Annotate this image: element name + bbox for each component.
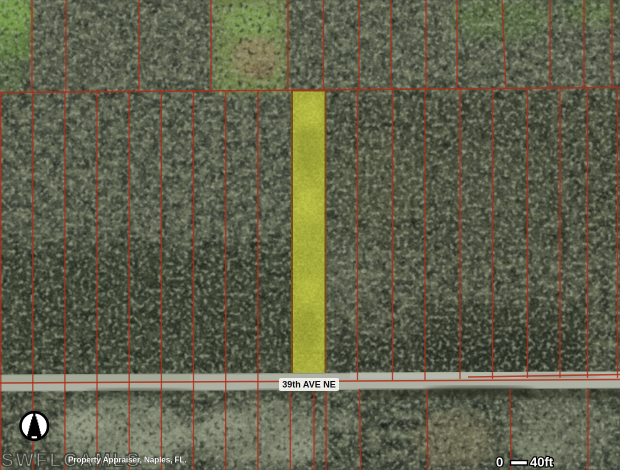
svg-text:39th AVE NE: 39th AVE NE	[282, 380, 336, 390]
svg-text:Property Appraiser, Naples, FL: Property Appraiser, Naples, FL.	[68, 456, 187, 465]
svg-text:40ft: 40ft	[530, 455, 554, 470]
svg-text:0: 0	[496, 455, 503, 470]
